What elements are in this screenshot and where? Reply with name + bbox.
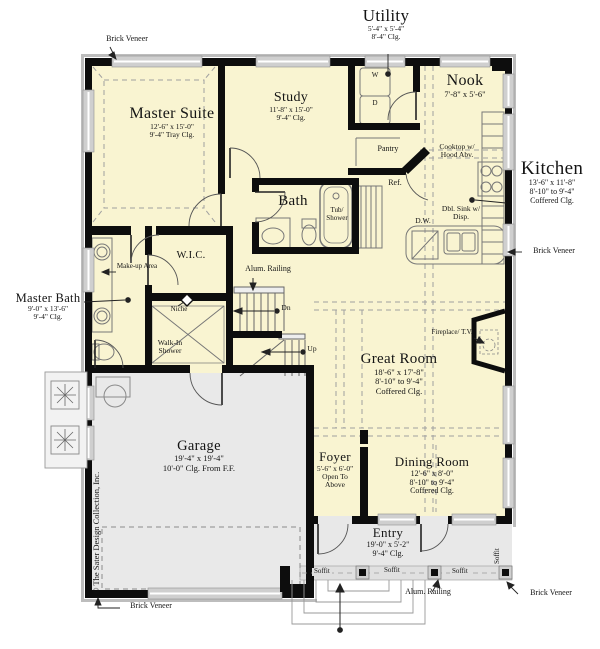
master-suite-dim-2: 9'-4" Tray Clg. xyxy=(124,131,220,139)
brick-veneer-bottom-right-label: Brick Veneer xyxy=(520,589,582,598)
cooktop-label: Cooktop w/ Hood Abv. xyxy=(432,143,482,160)
master-suite-title: Master Suite xyxy=(124,106,220,123)
dining-title: Dining Room xyxy=(382,455,482,470)
nook-title: Nook xyxy=(422,72,508,90)
master-bath-dim-2: 9'-4" Clg. xyxy=(8,313,88,321)
soffit-label-vertical: Soffit xyxy=(494,534,502,564)
study-title: Study xyxy=(254,90,328,106)
room-nook: Nook 7'-8" x 5'-6" xyxy=(422,72,508,99)
room-master-bath: Master Bath 9'-0" x 13'-6" 9'-4" Clg. xyxy=(8,291,88,322)
dining-dim-3: Coffered Clg. xyxy=(382,487,482,496)
garage-title: Garage xyxy=(142,438,256,454)
utility-dim-2: 8'-4" Clg. xyxy=(348,33,424,41)
great-room-title: Great Room xyxy=(346,351,452,368)
brick-veneer-bottom-left-label: Brick Veneer xyxy=(120,602,182,611)
room-garage: Garage 19'-4" x 19'-4" 10'-0" Clg. From … xyxy=(142,438,256,473)
alum-railing-entry-label: Alum. Railing xyxy=(396,588,460,597)
dn-label: Dn xyxy=(277,304,295,312)
fireplace-tv-label: Fireplace/ T.V. xyxy=(429,329,475,337)
foyer-title: Foyer xyxy=(306,450,364,465)
entry-title: Entry xyxy=(350,526,426,541)
room-wic: W.I.C. xyxy=(166,250,216,262)
up-label: Up xyxy=(303,345,321,353)
washer-label: W xyxy=(366,72,384,80)
floor-plan: Brick Veneer Utility 5'-4" x 5'-4" 8'-4"… xyxy=(0,0,600,649)
alum-railing-stairs-label: Alum. Railing xyxy=(234,265,302,274)
soffit-label-2: Soffit xyxy=(382,567,402,575)
utility-title: Utility xyxy=(348,6,424,25)
study-dim-2: 9'-4" Clg. xyxy=(254,114,328,122)
kitchen-title: Kitchen xyxy=(506,158,598,179)
ref-label: Ref. xyxy=(382,179,408,188)
walk-in-shower-label: Walk-In Shower xyxy=(147,339,193,356)
tub-shower-label: Tub/ Shower xyxy=(321,207,353,223)
dw-label: D.W. xyxy=(410,217,436,225)
nook-dim-1: 7'-8" x 5'-6" xyxy=(422,90,508,100)
room-foyer: Foyer 5'-6" x 6'-0" Open To Above xyxy=(306,450,364,490)
room-entry: Entry 19'-0" x 5'-2" 9'-4" Clg. xyxy=(350,526,426,558)
makeup-area-label: Make-up Area xyxy=(116,263,158,271)
room-dining: Dining Room 12'-6" x 8'-0" 8'-10" to 9'-… xyxy=(382,455,482,496)
room-kitchen: Kitchen 13'-6" x 11'-8" 8'-10" to 9'-4" … xyxy=(506,158,598,206)
room-bath: Bath xyxy=(266,193,320,210)
niche-label: Niche xyxy=(164,306,194,314)
brick-veneer-right-label: Brick Veneer xyxy=(522,247,586,256)
kitchen-dim-3: Coffered Clg. xyxy=(506,197,598,206)
brick-veneer-top-label: Brick Veneer xyxy=(96,35,158,44)
garage-dim-2: 10'-0" Clg. From F.F. xyxy=(142,464,256,474)
room-master-suite: Master Suite 12'-6" x 15'-0" 9'-4" Tray … xyxy=(124,106,220,140)
soffit-label-3: Soffit xyxy=(450,568,470,576)
wic-title: W.I.C. xyxy=(166,250,216,262)
bath-title: Bath xyxy=(266,193,320,210)
room-study: Study 11'-8" x 15'-0" 9'-4" Clg. xyxy=(254,90,328,122)
copyright-label: © The Sater Design Collection, Inc. xyxy=(92,414,102,594)
dbl-sink-label: Dbl. Sink w/ Disp. xyxy=(438,205,484,222)
dryer-label: D xyxy=(366,100,384,108)
great-room-dim-3: Coffered Clg. xyxy=(346,387,452,397)
room-great-room: Great Room 18'-6" x 17'-8" 8'-10" to 9'-… xyxy=(346,351,452,396)
foyer-dim-3: Above xyxy=(306,481,364,489)
soffit-label-1: Soffit xyxy=(312,568,332,576)
master-bath-title: Master Bath xyxy=(8,291,88,305)
pantry-label: Pantry xyxy=(366,145,410,154)
entry-dim-2: 9'-4" Clg. xyxy=(350,550,426,559)
planters xyxy=(45,372,87,468)
room-utility: Utility 5'-4" x 5'-4" 8'-4" Clg. xyxy=(348,6,424,42)
